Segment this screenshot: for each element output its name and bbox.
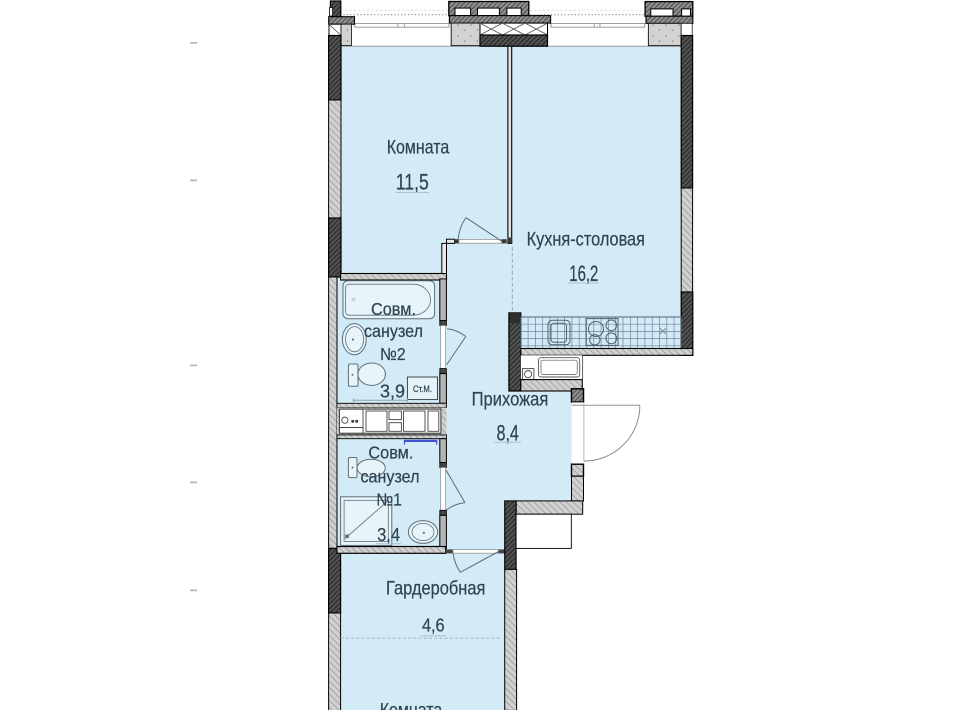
svg-text:16,2: 16,2 xyxy=(569,261,598,286)
svg-text:№2: №2 xyxy=(380,344,406,364)
svg-text:№1: №1 xyxy=(376,490,402,510)
svg-text:3,9: 3,9 xyxy=(380,381,405,402)
svg-text:санузел: санузел xyxy=(364,321,423,341)
svg-text:санузел: санузел xyxy=(361,467,420,487)
svg-text:Прихожая: Прихожая xyxy=(472,388,549,410)
svg-text:Совм.: Совм. xyxy=(371,299,416,319)
svg-text:4,6: 4,6 xyxy=(422,614,445,635)
svg-text:Комната: Комната xyxy=(380,700,443,710)
svg-text:3,4: 3,4 xyxy=(377,524,400,545)
svg-text:11,5: 11,5 xyxy=(396,169,429,194)
svg-text:8,4: 8,4 xyxy=(496,420,519,445)
svg-text:Ст.М.: Ст.М. xyxy=(413,384,432,394)
svg-text:Гардеробная: Гардеробная xyxy=(386,578,485,600)
svg-text:Кухня-столовая: Кухня-столовая xyxy=(527,228,645,250)
svg-text:Комната: Комната xyxy=(387,137,450,159)
svg-text:Совм.: Совм. xyxy=(368,443,413,463)
